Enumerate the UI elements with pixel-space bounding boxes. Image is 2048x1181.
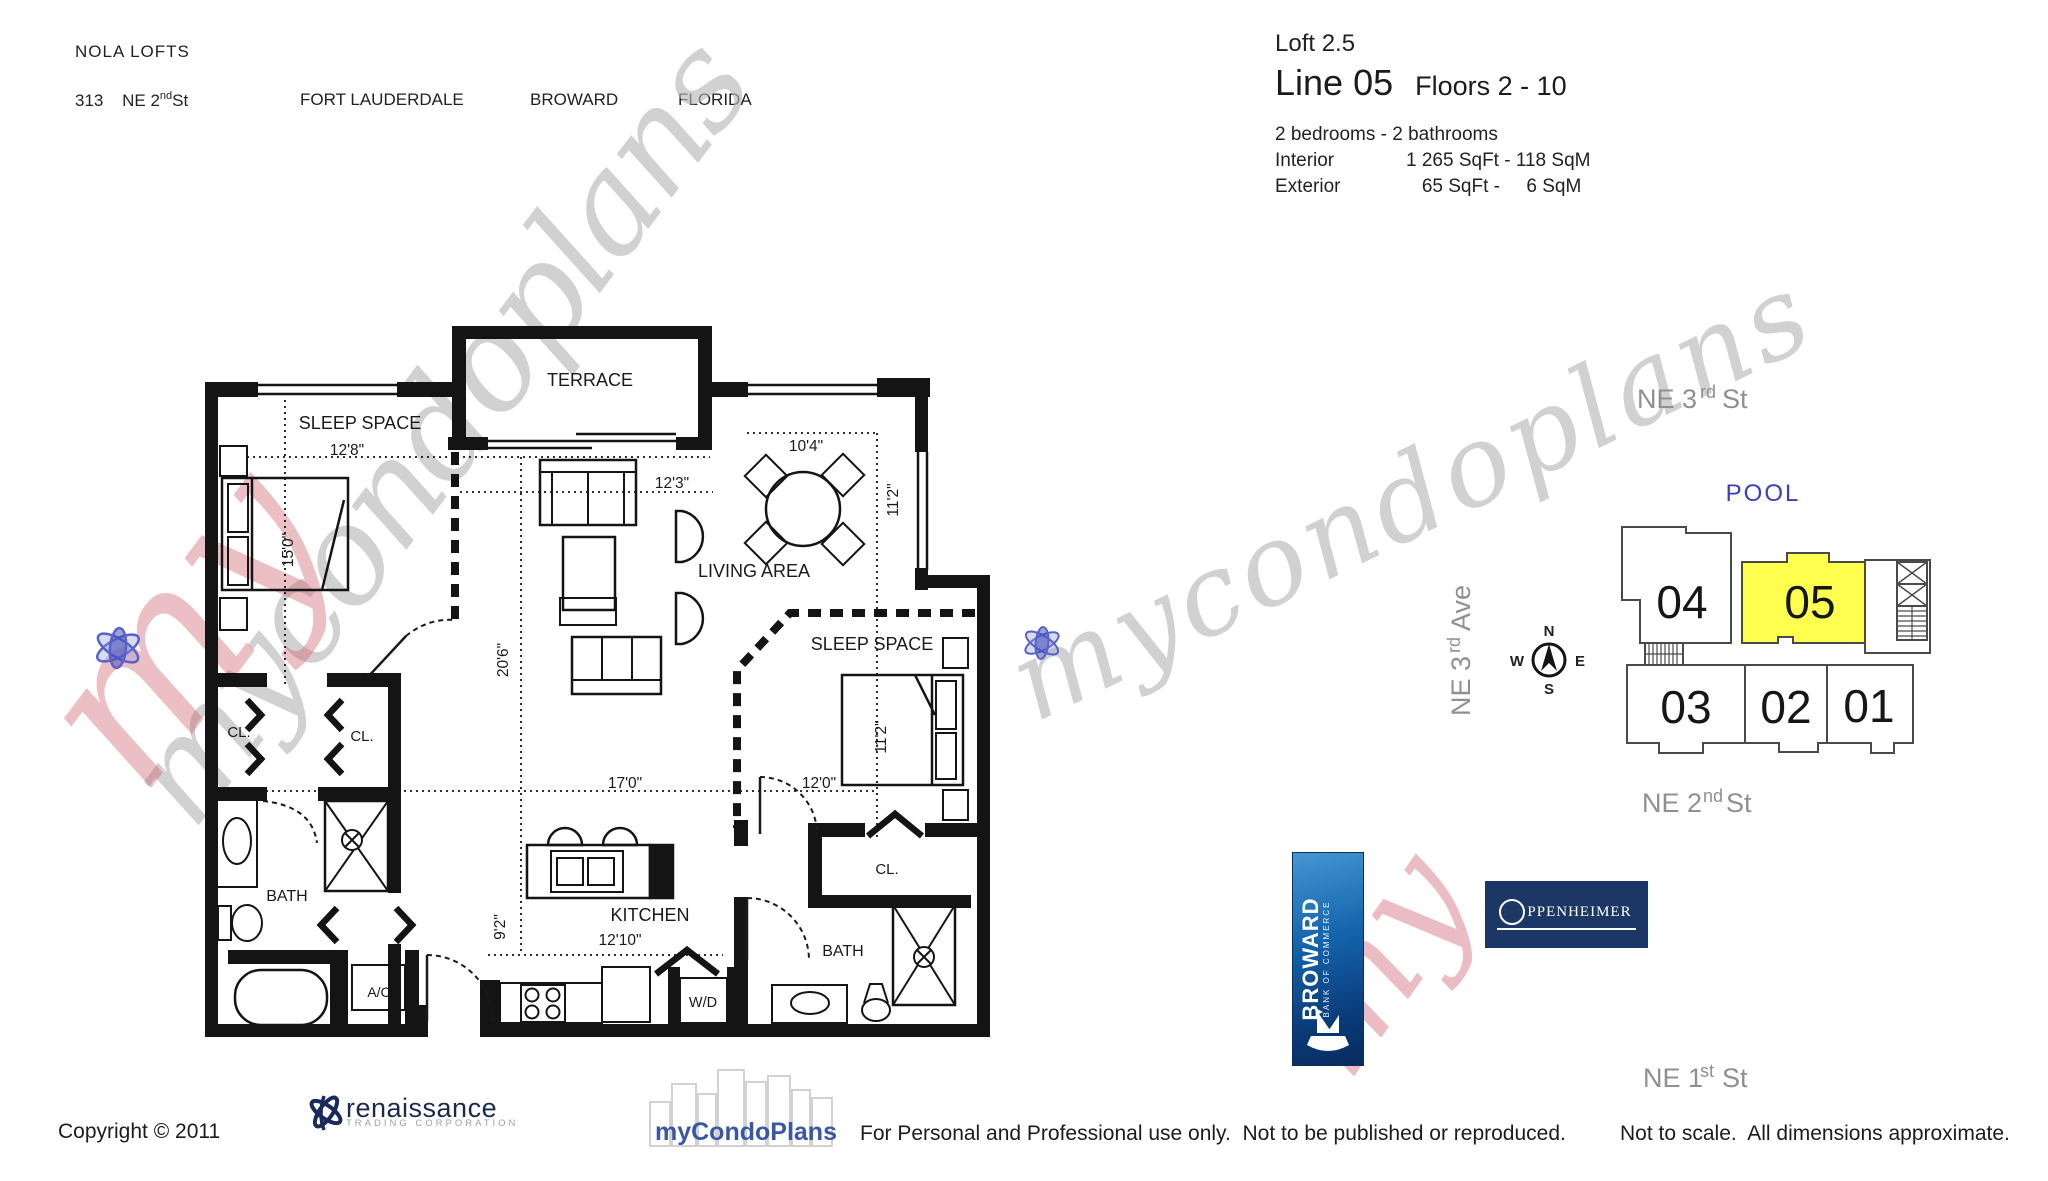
page: NOLA LOFTS 313 NE 2nd St FORT LAUDERDALE… [0,0,2048,1181]
renaissance-trefoil-icon [308,1094,343,1130]
unit-01-number: 01 [1843,680,1894,732]
wd-label: W/D [689,995,717,1011]
usage-note: For Personal and Professional use only. … [860,1122,1566,1146]
street-bottom-sup: st [1700,1061,1714,1081]
compass-e: E [1575,653,1585,670]
street-bottom: NE 1 [1643,1063,1703,1093]
unit-04-number: 04 [1656,576,1707,628]
ave-left-sup: rd [1444,637,1464,653]
street-mid: NE 2 [1642,788,1702,818]
closet-2-label: CL. [350,728,373,745]
unit-05-number: 05 [1784,576,1835,628]
closet-1-label: CL. [227,724,250,741]
compass: N E S W [1510,623,1585,698]
unit-03-number: 03 [1660,681,1711,733]
oppenheimer-logo: PPENHEIMER [1485,881,1648,948]
dim-10-4: 10'4" [789,438,823,455]
street-mid-suffix: St [1726,788,1752,818]
street-top-suffix: St [1722,384,1748,414]
living-area-label: LIVING AREA [698,561,810,581]
pool-label: POOL [1726,480,1801,507]
broward-bank-logo: BROWARD BANK OF COMMERCE [1292,852,1364,1066]
copyright: Copyright © 2011 [58,1120,220,1144]
ship-icon [1301,1005,1355,1059]
dim-17-0: 17'0" [608,775,642,792]
watermark-my-right: my [1235,818,1509,1106]
renaissance-logo: renaissance TRADING CORPORATION [346,1098,518,1129]
ave-left-suffix: Ave [1446,585,1476,631]
dim-20-6: 20'6" [495,643,512,677]
renaissance-sub: TRADING CORPORATION [346,1118,518,1129]
compass-needle [1541,644,1557,671]
compass-w: W [1510,653,1525,670]
dim-9-2: 9'2" [492,914,509,940]
mycondoplans-logo: myCondoPlans [655,1118,837,1147]
dim-11-2-living: 11'2" [885,483,902,516]
street-top-sup: rd [1700,382,1716,402]
dim-12-0: 12'0" [802,775,836,792]
renaissance-name: renaissance [346,1098,518,1118]
terrace-label: TERRACE [547,370,633,390]
compass-n: N [1544,623,1555,640]
oppenheimer-text: PPENHEIMER [1527,904,1631,921]
bath-2-label: BATH [822,943,863,960]
dim-11-2-sleep: 11'2" [873,720,890,753]
dim-12-8: 12'8" [330,442,364,459]
drawing-layer: mycondoplans my mycondoplans my [0,0,2048,1181]
bath-1-label: BATH [266,888,307,905]
sleep-space-2-label: SLEEP SPACE [811,634,933,654]
oppenheimer-o-icon [1499,899,1525,925]
closet-3-label: CL. [875,861,898,878]
sleep-space-1-label: SLEEP SPACE [299,413,421,433]
ave-left: NE 3 [1446,656,1476,716]
compass-s: S [1544,681,1554,698]
dim-12-3: 12'3" [655,475,689,492]
ac-label: A/C [367,984,390,1000]
street-mid-sup: nd [1703,786,1723,806]
dim-12-10: 12'10" [599,932,642,949]
dim-15-0: 15'0" [280,533,297,567]
kitchen-label: KITCHEN [610,905,689,925]
scale-note: Not to scale. All dimensions approximate… [1620,1122,2010,1146]
street-top: NE 3 [1637,384,1697,414]
street-bottom-suffix: St [1722,1063,1748,1093]
unit-02-number: 02 [1760,681,1811,733]
